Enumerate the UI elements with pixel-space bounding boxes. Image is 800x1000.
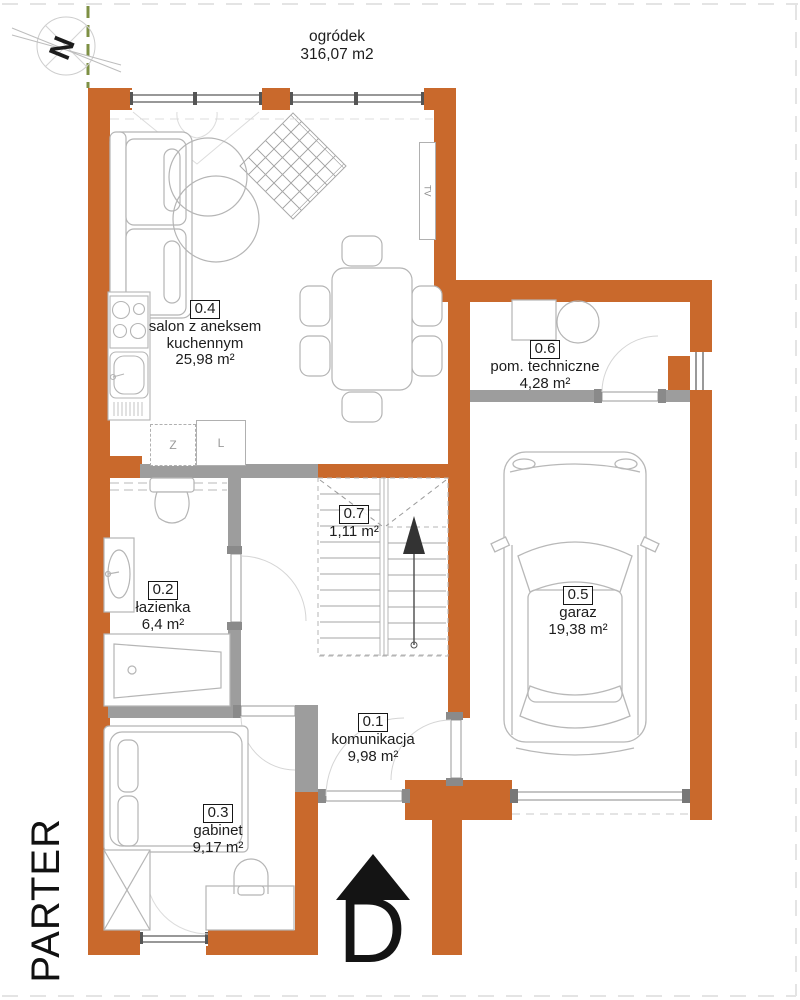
interior-wall <box>140 464 318 478</box>
fridge-label: L <box>218 436 225 450</box>
wall-house-garage-divider <box>448 302 470 718</box>
exterior-wall-bottom <box>88 930 140 955</box>
interior-wall-gabinet-top <box>108 705 240 718</box>
compass-north-icon: N <box>12 17 121 75</box>
garage-door <box>510 788 690 814</box>
washer <box>512 300 556 340</box>
bathroom-door <box>227 546 306 630</box>
gabinet-door <box>233 705 295 770</box>
toilet <box>150 478 194 523</box>
exterior-wall-wing-right <box>690 302 712 352</box>
sofa <box>110 132 192 318</box>
wardrobe <box>104 850 150 930</box>
garden-label: ogródek 316,07 m2 <box>257 28 417 64</box>
room-number: 0.1 <box>358 713 389 732</box>
room-number: 0.7 <box>339 505 370 524</box>
exterior-wall-wing-right <box>690 390 712 820</box>
interior-wall-bath-east <box>228 478 241 554</box>
room-label-pom-techniczne: 0.6 pom. techniczne 4,28 m² <box>470 340 620 392</box>
wall-stub-kitchen <box>108 456 142 478</box>
room-label-gabinet: 0.3 gabinet 9,17 m² <box>158 804 278 856</box>
stairs-up-arrow-icon <box>403 516 425 648</box>
plot-boundary <box>2 4 798 996</box>
room-number: 0.6 <box>530 340 561 359</box>
bathtub <box>104 634 230 706</box>
entrance-marker: D <box>332 888 412 973</box>
room-number: 0.2 <box>148 581 179 600</box>
rug <box>239 112 346 219</box>
garden-name: ogródek <box>257 28 417 46</box>
wall-stair-top <box>318 464 448 478</box>
exterior-wall-left <box>88 88 110 955</box>
technical-room-equipment <box>512 300 599 343</box>
room-number: 0.3 <box>203 804 234 823</box>
floor-title: PARTER <box>24 818 69 983</box>
desk-chair <box>234 859 268 895</box>
room-label-schody: 0.7 1,11 m² <box>314 505 394 541</box>
wall-entrance-pillar <box>432 820 462 955</box>
room-label-lazienka: 0.2 łazienka 6,4 m² <box>103 581 223 633</box>
room-number: 0.4 <box>190 300 221 319</box>
floor-plan: Z L TV N <box>0 0 800 1000</box>
exterior-wall-top <box>424 88 456 110</box>
dining-table-and-chairs <box>300 236 442 422</box>
desk <box>206 886 294 930</box>
room-label-garaz: 0.5 garaz 19,38 m² <box>518 586 638 638</box>
wall-entrance-block <box>405 780 512 820</box>
fridge-box: L <box>196 420 246 466</box>
interior-wall-pom-bottom <box>662 390 690 402</box>
room-number: 0.5 <box>563 586 594 605</box>
exterior-wall-top <box>88 88 132 110</box>
room-label-salon: 0.4 salon z aneksem kuchennym 25,98 m² <box>135 300 275 369</box>
exterior-wall-salon-east <box>434 110 456 302</box>
exterior-wall-top <box>262 88 290 110</box>
interior-wall-bath-east <box>228 622 241 706</box>
exterior-wall-wing-top <box>456 280 712 302</box>
dishwasher-label: Z <box>169 438 176 452</box>
room-label-komunikacja: 0.1 komunikacja 9,98 m² <box>303 713 443 765</box>
tv-label: TV <box>423 185 433 197</box>
garden-area: 316,07 m2 <box>257 46 417 64</box>
exterior-wall-bottom <box>206 930 318 955</box>
tv-cabinet: TV <box>419 142 436 240</box>
boiler <box>557 301 599 343</box>
wall-stub <box>668 356 690 390</box>
compass-letter: N <box>43 32 82 64</box>
dishwasher-box: Z <box>150 424 196 466</box>
coffee-table <box>169 138 259 262</box>
